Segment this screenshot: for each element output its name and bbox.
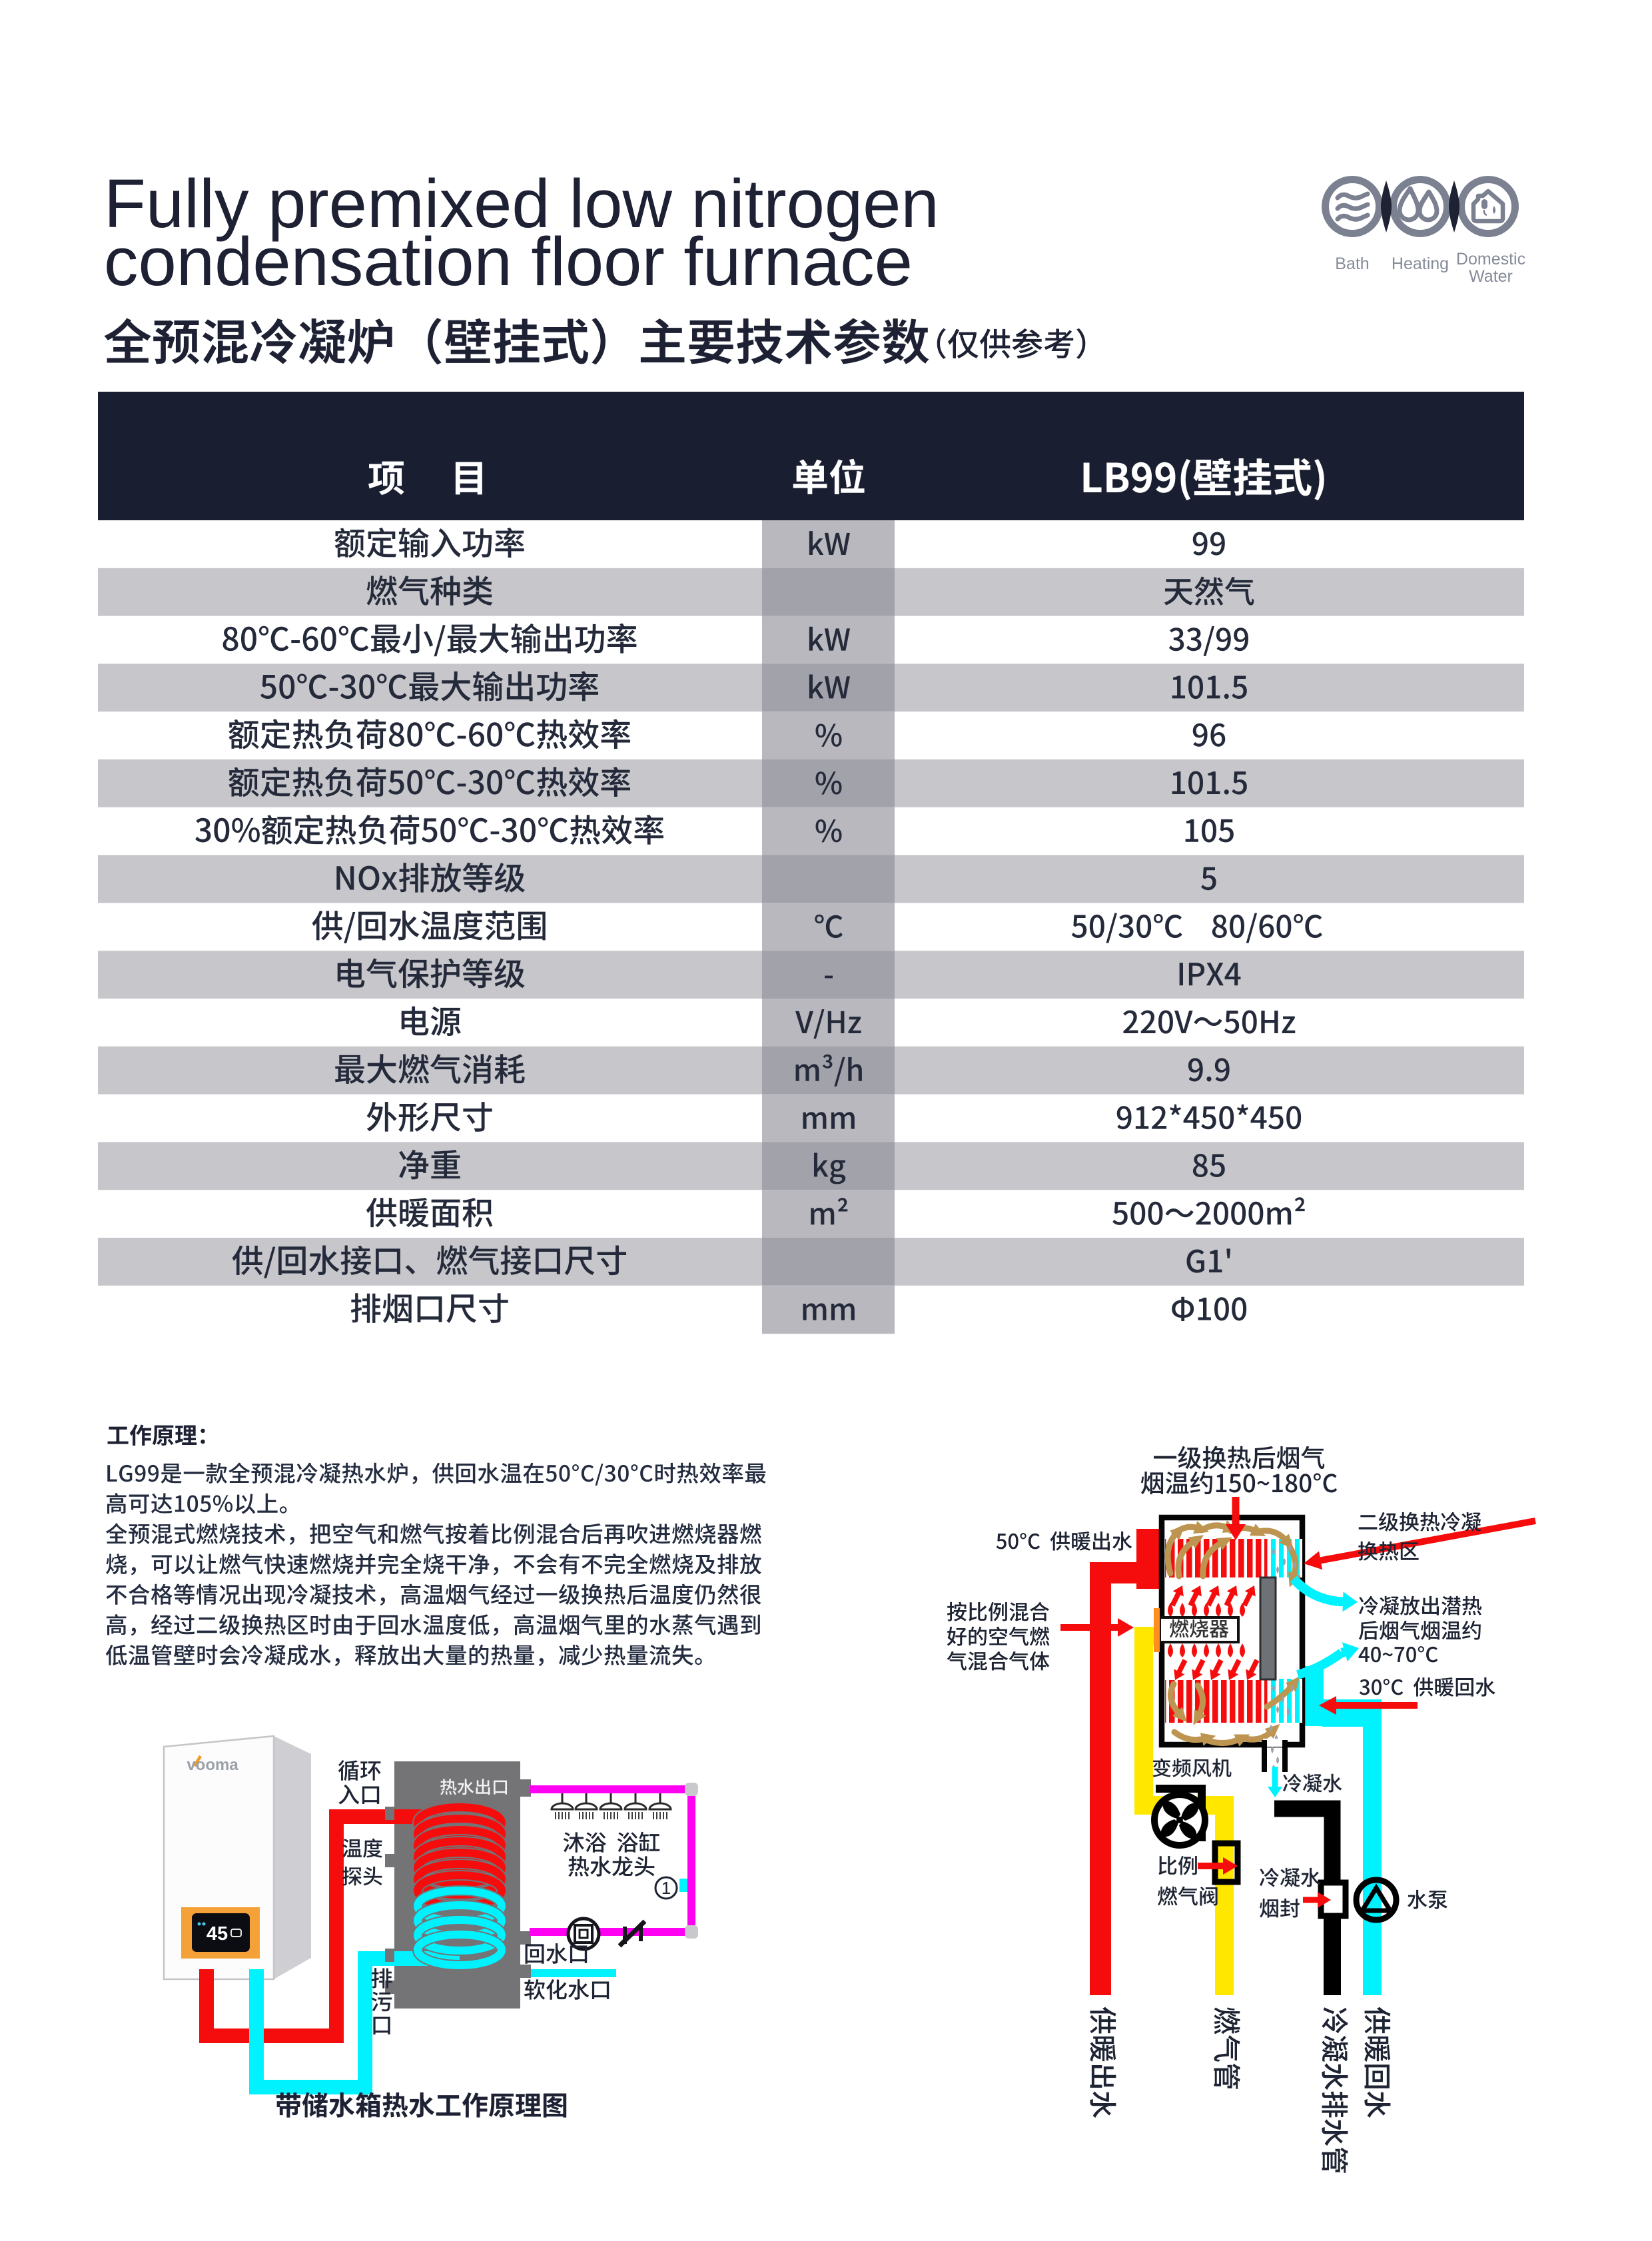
svg-text:45: 45 (206, 1923, 228, 1945)
svg-text:Heating: Heating (1392, 254, 1449, 273)
svg-text:1: 1 (661, 1878, 671, 1898)
svg-text:Water: Water (1469, 267, 1513, 286)
svg-text:vooma: vooma (187, 1756, 238, 1774)
svg-text:Bath: Bath (1335, 254, 1369, 273)
svg-text:Domestic: Domestic (1456, 250, 1525, 268)
svg-text:condensation floor furnace: condensation floor furnace (104, 223, 913, 300)
